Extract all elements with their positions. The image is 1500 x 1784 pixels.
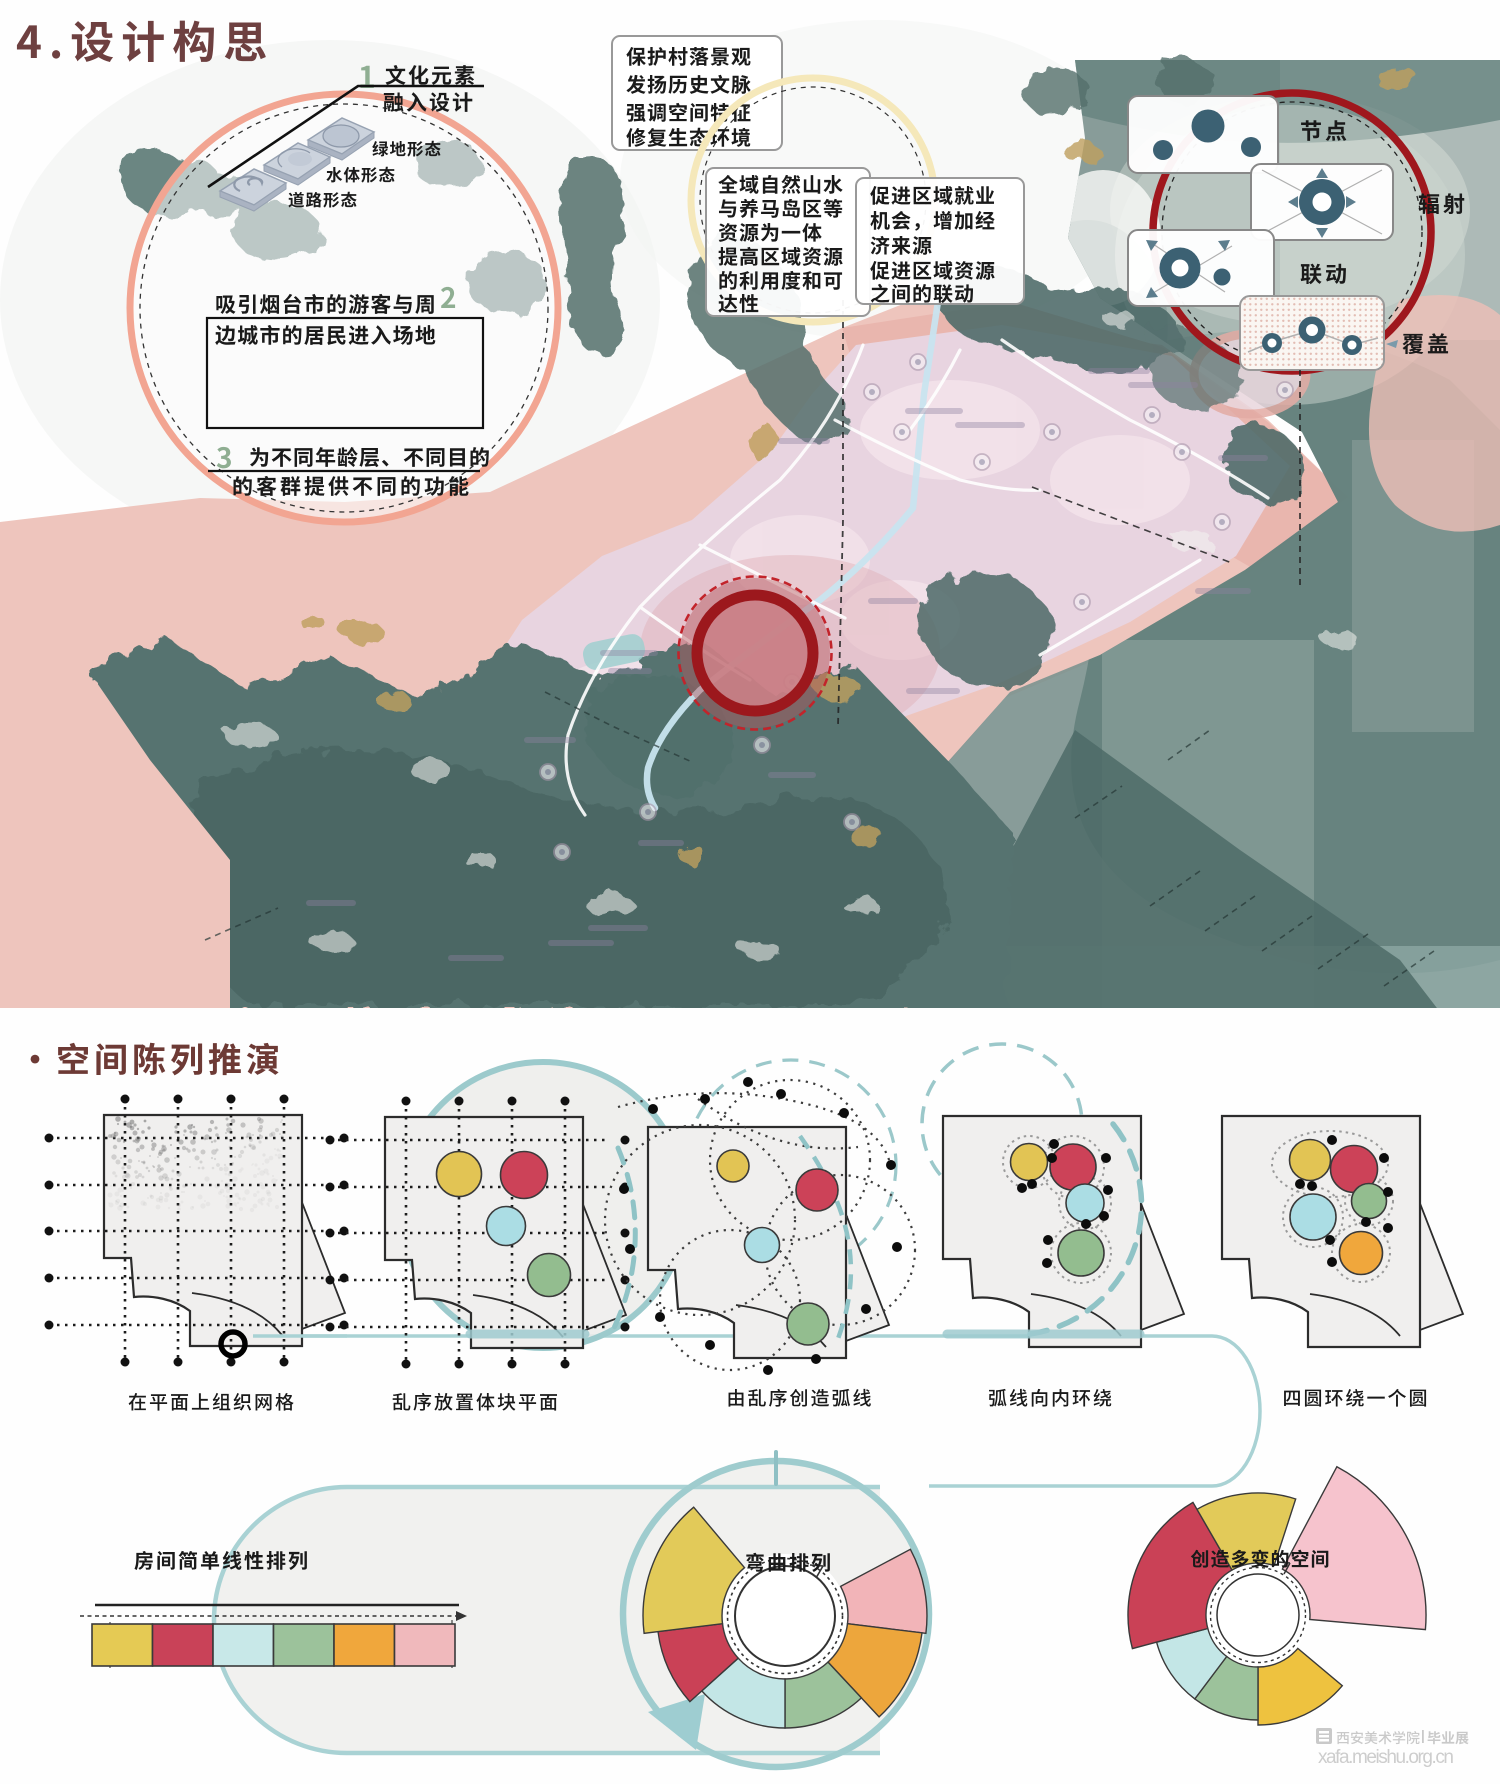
svg-text:xafa.meishu.org.cn: xafa.meishu.org.cn	[1318, 1747, 1454, 1768]
